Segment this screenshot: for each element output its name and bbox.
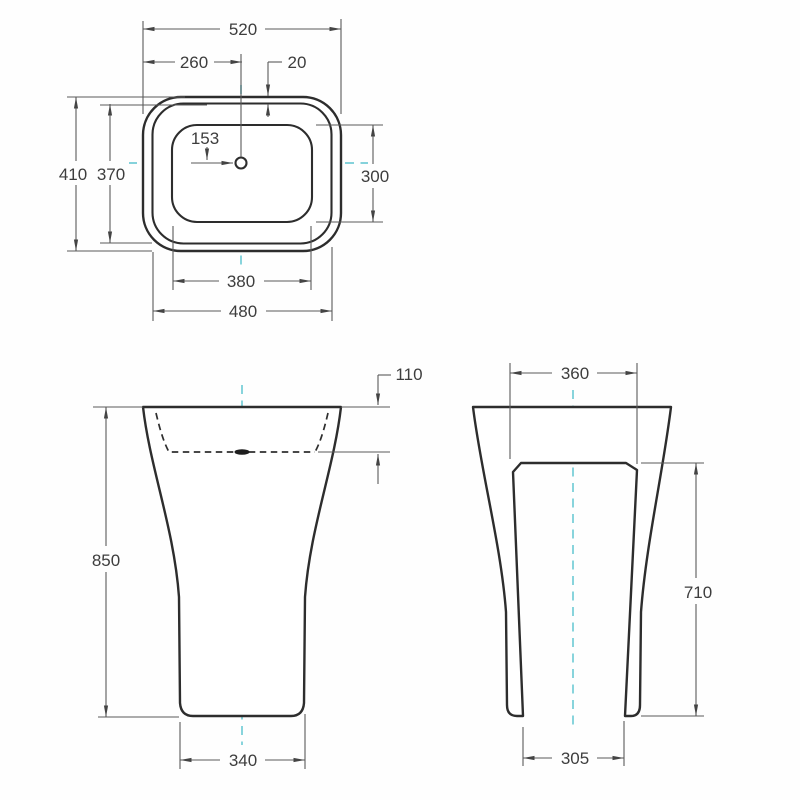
dim-410: 410 bbox=[56, 97, 92, 251]
drain-hole bbox=[235, 449, 250, 455]
dim-300: 300 bbox=[355, 125, 393, 222]
side-view: 360 710 305 bbox=[473, 363, 717, 768]
dim-370: 370 bbox=[93, 104, 129, 243]
dim-480-label: 480 bbox=[229, 302, 257, 321]
dim-710-label: 710 bbox=[684, 583, 712, 602]
top-view: 520 260 20 153 410 bbox=[56, 19, 393, 321]
dim-260-label: 260 bbox=[180, 53, 208, 72]
dim-110-label: 110 bbox=[395, 365, 422, 384]
dim-20-label: 20 bbox=[288, 53, 307, 72]
dim-340: 340 bbox=[180, 751, 305, 770]
dim-153-label: 153 bbox=[191, 129, 219, 148]
dim-370-label: 370 bbox=[97, 165, 125, 184]
dim-850: 850 bbox=[87, 407, 125, 717]
dim-110: 110 bbox=[378, 365, 423, 484]
dim-360-label: 360 bbox=[561, 364, 589, 383]
pedestal-side-outline bbox=[473, 407, 671, 716]
dim-850-label: 850 bbox=[92, 551, 120, 570]
dim-710: 710 bbox=[677, 463, 717, 716]
dim-380: 380 bbox=[173, 272, 311, 291]
dim-480: 480 bbox=[153, 302, 332, 321]
dim-520: 520 bbox=[143, 20, 341, 39]
dim-360: 360 bbox=[510, 364, 637, 383]
dim-340-label: 340 bbox=[229, 751, 257, 770]
dim-305-label: 305 bbox=[561, 749, 589, 768]
dim-260: 260 bbox=[143, 53, 242, 72]
dim-380-label: 380 bbox=[227, 272, 255, 291]
technical-drawing-page: 520 260 20 153 410 bbox=[0, 0, 800, 800]
basin-dimension-drawing: 520 260 20 153 410 bbox=[0, 0, 800, 800]
front-view: 110 850 340 bbox=[87, 365, 423, 770]
dim-410-label: 410 bbox=[59, 165, 87, 184]
dim-520-label: 520 bbox=[229, 20, 257, 39]
dim-305: 305 bbox=[523, 749, 624, 768]
tap-hole bbox=[236, 158, 247, 169]
dim-300-label: 300 bbox=[361, 167, 389, 186]
